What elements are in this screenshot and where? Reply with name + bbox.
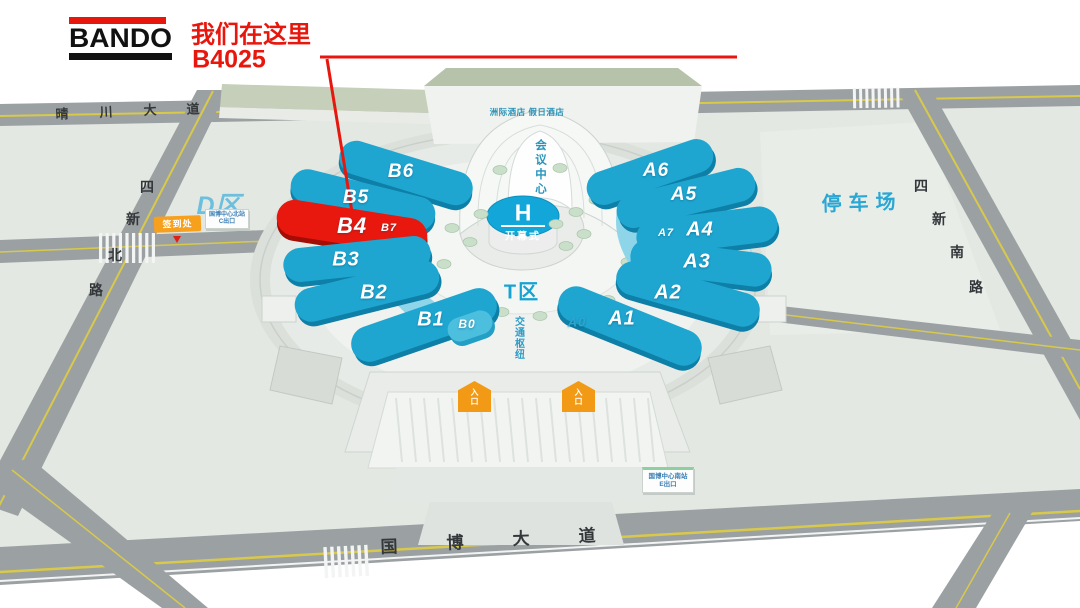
- bando-logo: BANDO: [69, 17, 173, 60]
- road-name-qingchuan-char: 川: [99, 101, 113, 121]
- metro-exit-south: 国博中心南站 E出口: [642, 467, 694, 493]
- hall-label-B7: B7: [381, 222, 397, 234]
- hall-label-B5: B5: [343, 187, 369, 209]
- road-name-qingchuan-char: 道: [186, 98, 200, 118]
- hall-label-A4: A4: [686, 219, 714, 242]
- road-name-guobo-char: 道: [578, 521, 596, 547]
- road-name-guobo-char: 国: [380, 532, 398, 558]
- road-name-sixin_north-char: 路: [89, 280, 103, 300]
- hall-label-A0: A0: [568, 315, 587, 330]
- venue-map: BANDO 我们在这里 B4025 洲际酒店 假日酒店 会议中心 H 开幕式 T…: [0, 0, 1080, 608]
- road-name-sixin_south-char: 南: [950, 242, 964, 262]
- hall-label-B4: B4: [337, 213, 367, 239]
- road-name-guobo-char: 博: [446, 528, 464, 554]
- opening-ceremony-label: 开幕式: [505, 228, 541, 243]
- road-name-guobo-char: 大: [512, 524, 530, 550]
- metro-exit-north: 国博中心北站 C出口: [205, 209, 249, 229]
- hall-label-A2: A2: [654, 282, 682, 305]
- location-arrow-icon: [173, 236, 181, 243]
- logo-bottom-bar: [69, 53, 172, 60]
- hotel-roof: [424, 68, 702, 86]
- logo-wordmark: BANDO: [69, 24, 177, 53]
- hall-label-A6: A6: [643, 160, 669, 182]
- road-name-sixin_north-char: 四: [140, 177, 154, 197]
- hall-label-B0: B0: [458, 317, 475, 331]
- t-zone-label: T区: [504, 276, 540, 305]
- booth-number-text: B4025: [192, 46, 266, 75]
- entrance-tent-label: 入口: [574, 388, 583, 406]
- hall-label-B3: B3: [332, 249, 360, 272]
- conference-center-label: 会议中心: [532, 139, 548, 197]
- road-name-sixin_south-char: 路: [969, 277, 983, 297]
- hall-label-B1: B1: [417, 309, 445, 332]
- road-name-sixin_north-char: 北: [108, 245, 122, 265]
- road-name-sixin_south-char: 新: [932, 209, 946, 229]
- road-name-qingchuan-char: 晴: [55, 103, 69, 123]
- metro-south-station: 国博中心南站: [643, 473, 693, 481]
- transport-hub-label: 交通枢纽: [511, 316, 526, 360]
- hall-label-B6: B6: [388, 161, 414, 183]
- road-name-sixin_south-char: 四: [914, 176, 928, 196]
- hall-label-A3: A3: [683, 251, 711, 274]
- road-name-sixin_north-char: 新: [126, 209, 140, 229]
- we-are-here-text: 我们在这里: [191, 15, 311, 50]
- hall-label-A5: A5: [671, 184, 697, 206]
- hall-label-A1: A1: [608, 308, 636, 331]
- road-name-qingchuan-char: 大: [143, 99, 157, 119]
- hall-h-label: H: [515, 200, 532, 227]
- metro-north-station: 国博中心北站: [206, 212, 248, 219]
- registration-badge: 签到处: [154, 215, 202, 233]
- parking-label: 停车场: [821, 185, 903, 217]
- metro-south-exit: E出口: [643, 481, 693, 489]
- metro-north-exit: C出口: [206, 219, 248, 226]
- hall-label-B2: B2: [360, 282, 388, 305]
- hotels-label: 洲际酒店 假日酒店: [490, 106, 565, 118]
- entrance-tent-label: 入口: [470, 388, 479, 406]
- hall-label-A7: A7: [658, 227, 674, 239]
